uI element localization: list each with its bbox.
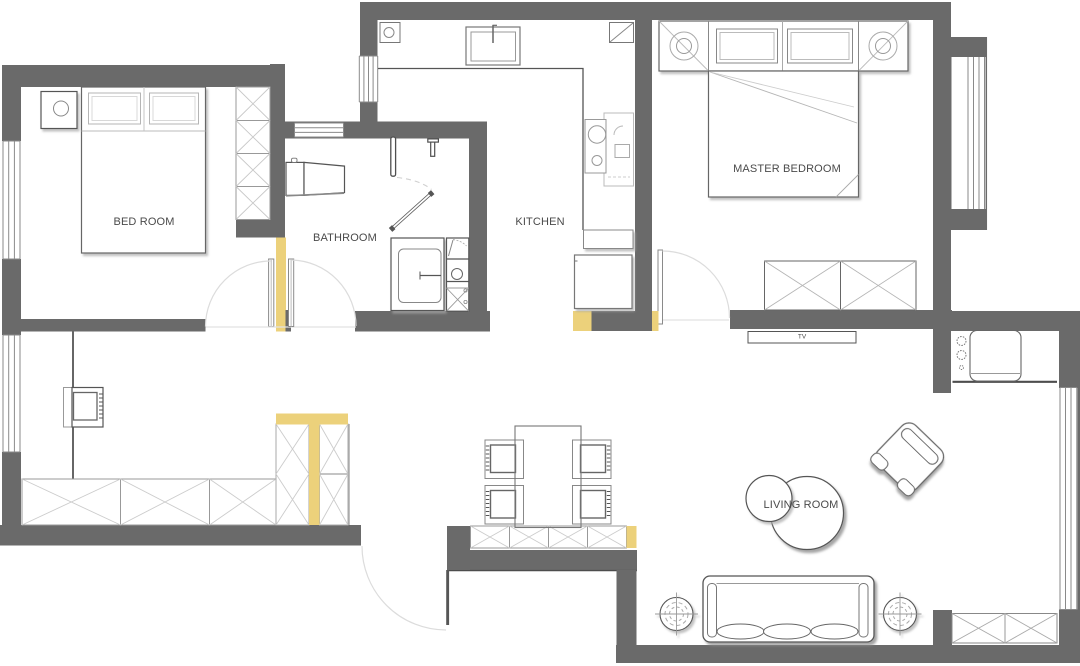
svg-text:MASTER BEDROOM: MASTER BEDROOM: [733, 163, 841, 175]
svg-text:BATHROOM: BATHROOM: [313, 232, 377, 244]
svg-text:TV: TV: [798, 334, 807, 341]
svg-text:BED ROOM: BED ROOM: [113, 216, 174, 228]
svg-text:LIVING ROOM: LIVING ROOM: [764, 499, 839, 511]
svg-text:KITCHEN: KITCHEN: [515, 216, 564, 228]
